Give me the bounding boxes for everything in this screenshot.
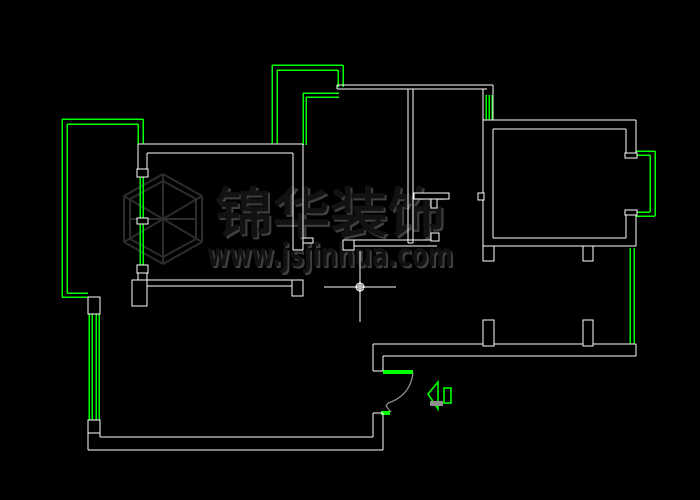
crosshair-aperture-petal: [361, 286, 363, 288]
cad-canvas[interactable]: 锦华装饰锦华装饰www.jsjinhua.comwww.jsjinhua.com: [0, 0, 700, 500]
crosshair-aperture-petal: [359, 288, 361, 290]
entry-door-swing-arc: [386, 373, 413, 412]
wall-pier: [343, 240, 354, 250]
wall-pier: [292, 280, 303, 296]
wall-pier: [132, 280, 147, 306]
wall-pier: [137, 265, 148, 273]
wall-pier: [625, 210, 637, 215]
floor-plan-svg[interactable]: 锦华装饰锦华装饰www.jsjinhua.comwww.jsjinhua.com: [0, 0, 700, 500]
wall-pier: [583, 246, 593, 261]
wall-pier: [414, 193, 449, 199]
watermark-group: 锦华装饰锦华装饰www.jsjinhua.comwww.jsjinhua.com: [124, 174, 455, 276]
entry-arrow-symbol: [428, 382, 451, 409]
entry-arrow-tail: [444, 388, 451, 403]
wall-pier: [431, 233, 439, 241]
wall-pier: [625, 153, 637, 158]
watermark-url: www.jsjinhua.com: [207, 236, 453, 274]
wall-pier: [583, 320, 593, 346]
wall-pier: [483, 246, 494, 261]
wall-pier: [483, 320, 494, 346]
wall-pier: [88, 297, 100, 314]
wall-pier: [303, 238, 313, 243]
wall-pier: [137, 169, 148, 177]
wall-pier: [137, 218, 148, 224]
crosshair-aperture-petal: [357, 286, 359, 288]
wall-pier: [431, 199, 437, 208]
door-leaf: [383, 370, 413, 374]
wall-pier: [88, 420, 100, 433]
crosshair-aperture-petal: [359, 284, 361, 286]
entry-arrow-bar: [430, 401, 443, 406]
wall-pier: [478, 193, 484, 200]
